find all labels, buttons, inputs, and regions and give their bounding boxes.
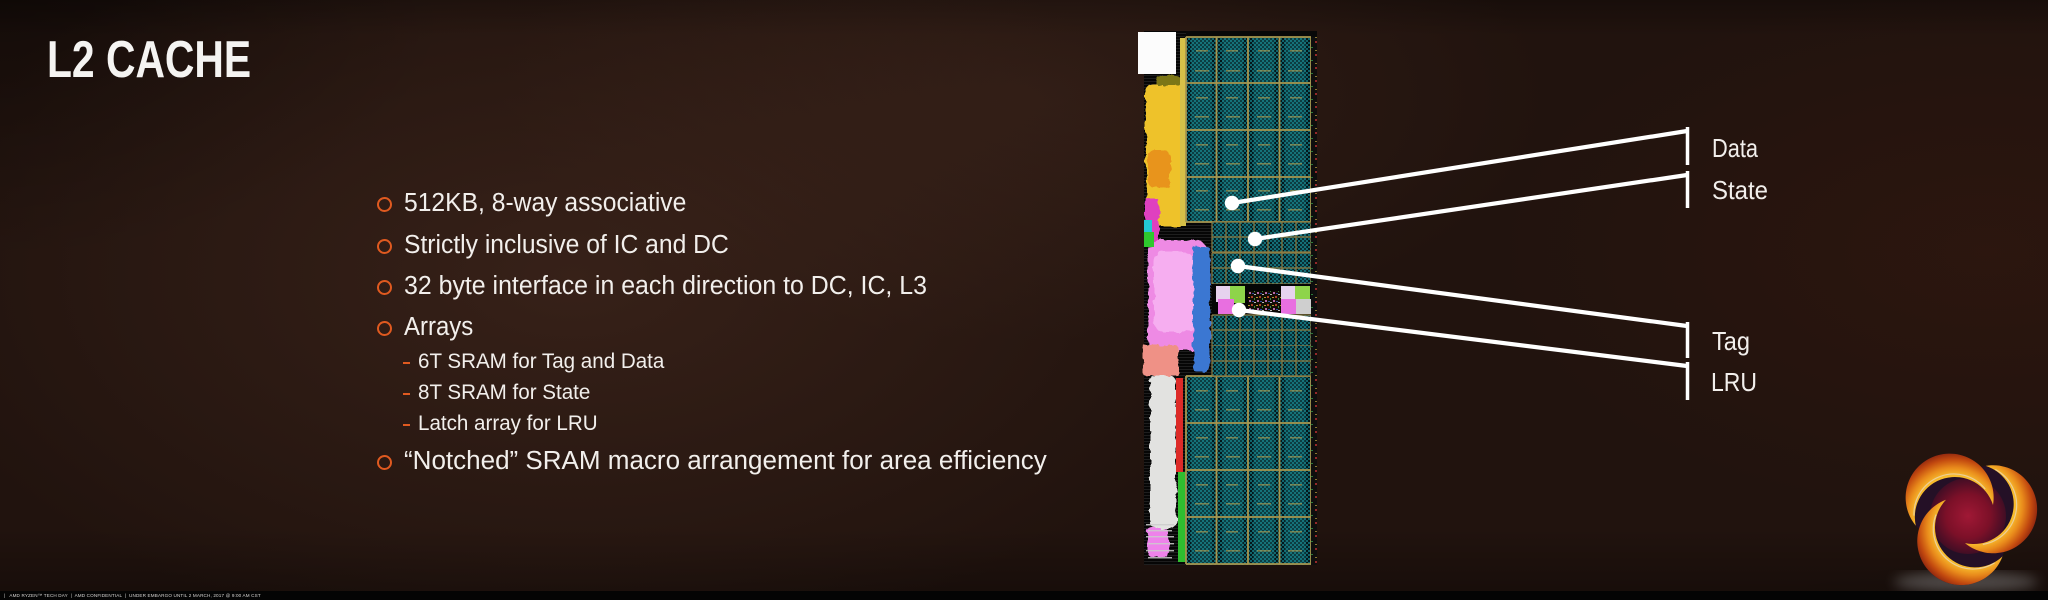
svg-text:Tag: Tag [1712, 326, 1750, 356]
svg-text:LRU: LRU [1711, 367, 1757, 397]
svg-text:State: State [1712, 175, 1768, 205]
svg-text:Data: Data [1712, 133, 1758, 163]
